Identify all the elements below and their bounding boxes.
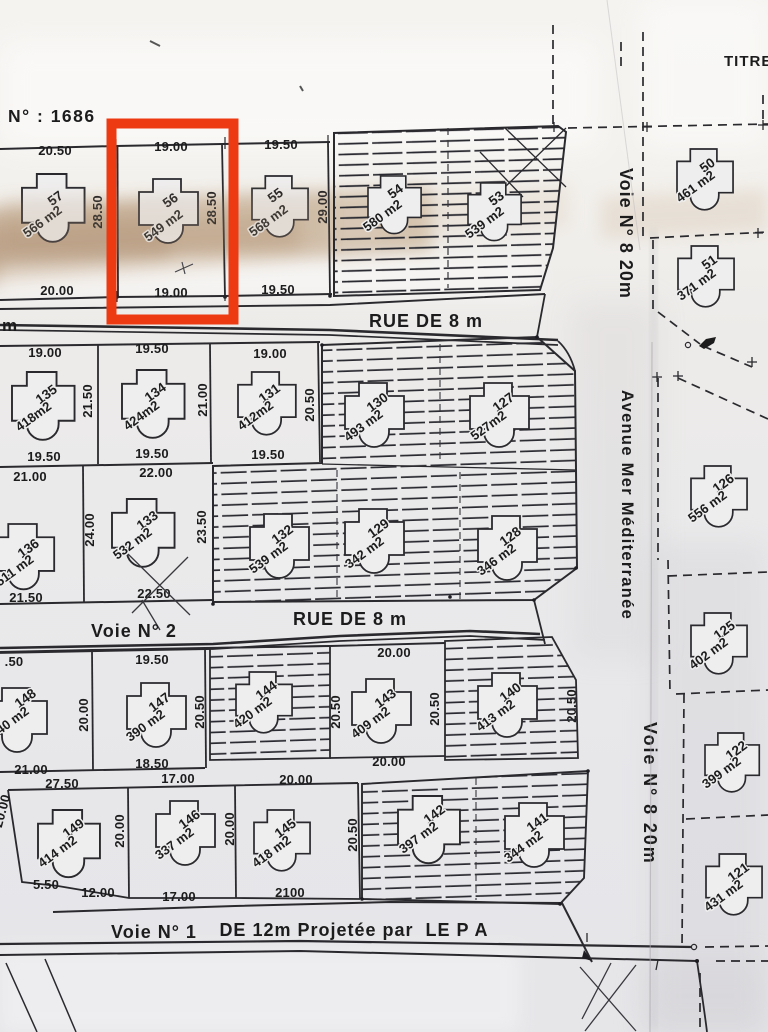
svg-text:19.50: 19.50 — [135, 341, 169, 356]
svg-text:20.50: 20.50 — [38, 143, 72, 158]
svg-text:27.50: 27.50 — [45, 776, 79, 791]
svg-text:TITRE: TITRE — [724, 53, 768, 70]
svg-text:m: m — [2, 316, 17, 335]
svg-text:Voie N° 8 20m: Voie N° 8 20m — [616, 168, 636, 299]
svg-text:RUE DE 8 m: RUE DE 8 m — [369, 311, 483, 331]
svg-text:Voie N° 2: Voie N° 2 — [91, 621, 177, 641]
svg-text:5.50: 5.50 — [33, 877, 59, 892]
svg-text:19.50: 19.50 — [264, 137, 298, 152]
svg-text:18.50: 18.50 — [135, 756, 169, 771]
svg-text:RUE DE 8 m: RUE DE 8 m — [293, 609, 407, 629]
svg-text:20.50: 20.50 — [345, 818, 360, 852]
svg-text:Avenue Mer Méditerranée: Avenue Mer Méditerranée — [618, 390, 636, 620]
svg-text:DE 12m Projetée par LE P A: DE 12m Projetée par LE P A — [219, 920, 488, 940]
svg-text:19.00: 19.00 — [154, 285, 188, 300]
svg-text:.50: .50 — [5, 654, 24, 669]
svg-text:20.00: 20.00 — [279, 772, 313, 787]
svg-text:21.00: 21.00 — [13, 469, 47, 484]
svg-text:21.50: 21.50 — [80, 384, 95, 418]
svg-text:19.50: 19.50 — [261, 282, 295, 297]
svg-text:N° : 1686: N° : 1686 — [8, 106, 96, 126]
svg-text:19.00: 19.00 — [28, 345, 62, 360]
svg-text:20.00: 20.00 — [222, 812, 237, 846]
svg-text:19.00: 19.00 — [253, 346, 287, 361]
svg-text:21.00: 21.00 — [195, 383, 210, 417]
svg-text:19.00: 19.00 — [154, 139, 188, 154]
svg-text:20.00: 20.00 — [112, 814, 127, 848]
svg-text:19.50: 19.50 — [135, 652, 169, 667]
svg-text:24.00: 24.00 — [82, 513, 97, 547]
svg-text:Voie N° 1: Voie N° 1 — [111, 922, 197, 942]
svg-text:21.50: 21.50 — [9, 590, 43, 605]
svg-text:2100: 2100 — [275, 885, 305, 900]
svg-text:19.50: 19.50 — [251, 447, 285, 462]
svg-text:12.00: 12.00 — [81, 885, 115, 900]
svg-text:17.00: 17.00 — [161, 771, 195, 786]
svg-text:19.50: 19.50 — [135, 446, 169, 461]
svg-text:20.00: 20.00 — [40, 283, 74, 298]
svg-text:22.50: 22.50 — [137, 586, 171, 601]
svg-text:19.50: 19.50 — [27, 449, 61, 464]
svg-text:20.50: 20.50 — [192, 695, 207, 729]
svg-text:20.00: 20.00 — [377, 645, 411, 660]
svg-text:17.00: 17.00 — [162, 889, 196, 904]
svg-text:20.50: 20.50 — [302, 388, 317, 422]
svg-text:22.00: 22.00 — [139, 465, 173, 480]
svg-text:20.00: 20.00 — [76, 698, 91, 732]
svg-text:20.50: 20.50 — [427, 692, 442, 726]
svg-text:23.50: 23.50 — [194, 510, 209, 544]
svg-text:21.00: 21.00 — [14, 762, 48, 777]
